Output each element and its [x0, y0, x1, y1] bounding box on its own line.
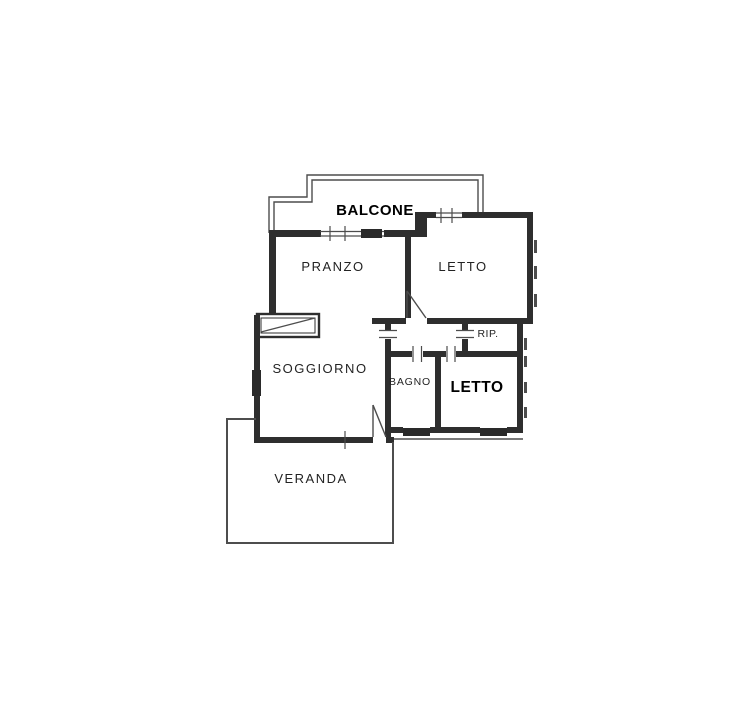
- wall: [430, 427, 480, 433]
- wall: [435, 351, 441, 433]
- window-block: [252, 370, 261, 396]
- wall: [423, 351, 446, 357]
- canvas-background: [0, 0, 737, 722]
- wall: [385, 339, 391, 437]
- wall: [269, 233, 276, 315]
- exterior-dash: [534, 266, 537, 279]
- wall: [385, 323, 391, 330]
- exterior-dash: [524, 407, 527, 418]
- room-label-letto-nord: LETTO: [438, 259, 487, 274]
- exterior-dash: [534, 240, 537, 253]
- wall: [507, 427, 522, 433]
- room-label-bagno: BAGNO: [389, 376, 431, 388]
- floorplan-page: BALCONEPRANZOLETTORIP.SOGGIORNOBAGNOLETT…: [0, 0, 737, 722]
- exterior-dash: [524, 356, 527, 367]
- wall: [456, 351, 522, 357]
- room-label-veranda: VERANDA: [274, 471, 347, 486]
- wall: [391, 427, 403, 433]
- exterior-dash: [524, 382, 527, 393]
- wall: [462, 339, 468, 353]
- wall: [269, 230, 321, 237]
- window-block: [361, 229, 382, 238]
- exterior-dash: [534, 294, 537, 307]
- wall: [462, 212, 533, 218]
- room-label-balcone: BALCONE: [336, 202, 414, 219]
- window-block: [403, 428, 430, 436]
- wall: [527, 212, 533, 320]
- wall: [405, 231, 411, 318]
- room-label-soggiorno: SOGGIORNO: [272, 361, 367, 376]
- room-label-pranzo: PRANZO: [301, 259, 364, 274]
- window-block: [480, 428, 507, 436]
- floorplan-svg: BALCONEPRANZOLETTORIP.SOGGIORNOBAGNOLETT…: [0, 0, 737, 722]
- wall: [462, 324, 468, 330]
- wall: [254, 437, 373, 443]
- exterior-dash: [524, 338, 527, 350]
- wall: [427, 318, 533, 324]
- room-label-letto-sud: LETTO: [450, 379, 503, 396]
- wall: [517, 324, 523, 433]
- room-label-rip: RIP.: [477, 328, 498, 340]
